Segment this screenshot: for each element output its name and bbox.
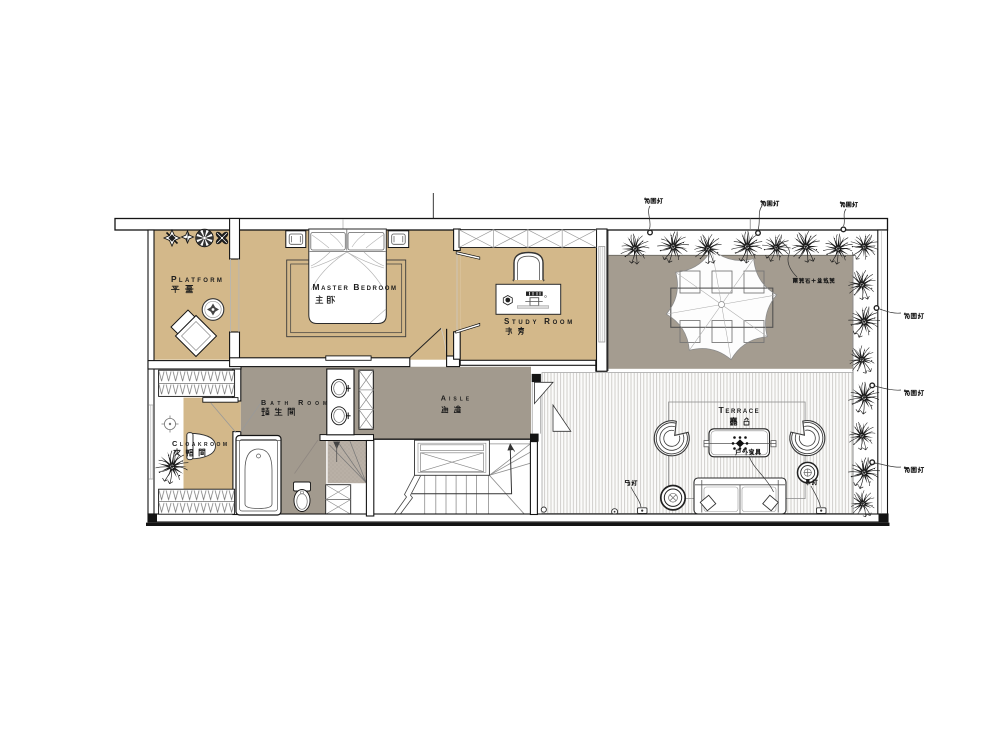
svg-text:Master Bedroom: Master Bedroom (313, 282, 398, 292)
svg-text:Bath Room: Bath Room (261, 398, 331, 407)
svg-text:Aisle: Aisle (441, 394, 472, 403)
svg-text:Cloakroom: Cloakroom (172, 439, 230, 448)
svg-text:Study Room: Study Room (504, 317, 575, 326)
svg-text:Terrace: Terrace (719, 405, 761, 415)
svg-text:Platform: Platform (171, 274, 224, 284)
